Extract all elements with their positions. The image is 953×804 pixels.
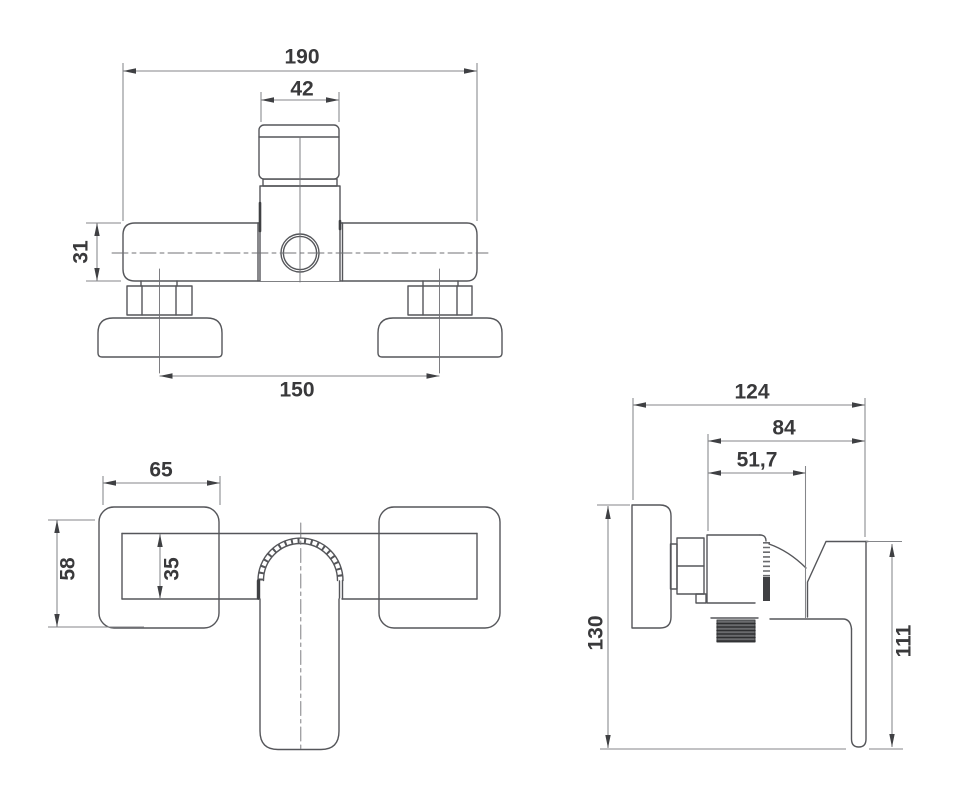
dim-label-150: 150 <box>279 380 314 401</box>
handle-side <box>769 542 868 748</box>
dim-label-84: 84 <box>772 418 795 439</box>
view-front-dimensions <box>48 476 220 627</box>
hose-thread <box>717 620 755 642</box>
dim-label-111: 111 <box>894 625 915 658</box>
handle-lever <box>260 599 339 750</box>
escutcheon-left <box>98 318 222 357</box>
mounting-nut-right <box>408 286 472 315</box>
dim-label-124: 124 <box>734 382 769 403</box>
cartridge-cap <box>259 125 339 179</box>
escutcheon-left <box>99 507 219 628</box>
dim-label-58: 58 <box>58 557 79 580</box>
view-top <box>98 125 502 373</box>
faucet-line-art <box>0 0 953 804</box>
drawing-canvas: 190 42 31 150 65 58 35 124 84 51,7 130 1… <box>0 0 953 804</box>
dim-label-65: 65 <box>149 460 172 481</box>
dim-label-31: 31 <box>71 240 92 263</box>
view-side <box>632 505 868 747</box>
escutcheon-right <box>378 318 502 357</box>
escutcheon-profile <box>632 505 671 628</box>
dim-label-130: 130 <box>586 615 607 650</box>
dim-label-190: 190 <box>284 47 319 68</box>
arrowheads <box>54 480 220 627</box>
dim-label-51-7: 51,7 <box>737 450 778 471</box>
valve-body <box>707 535 760 603</box>
dim-label-35: 35 <box>162 557 183 580</box>
escutcheon-right <box>379 507 500 628</box>
dim-label-42: 42 <box>290 79 313 100</box>
